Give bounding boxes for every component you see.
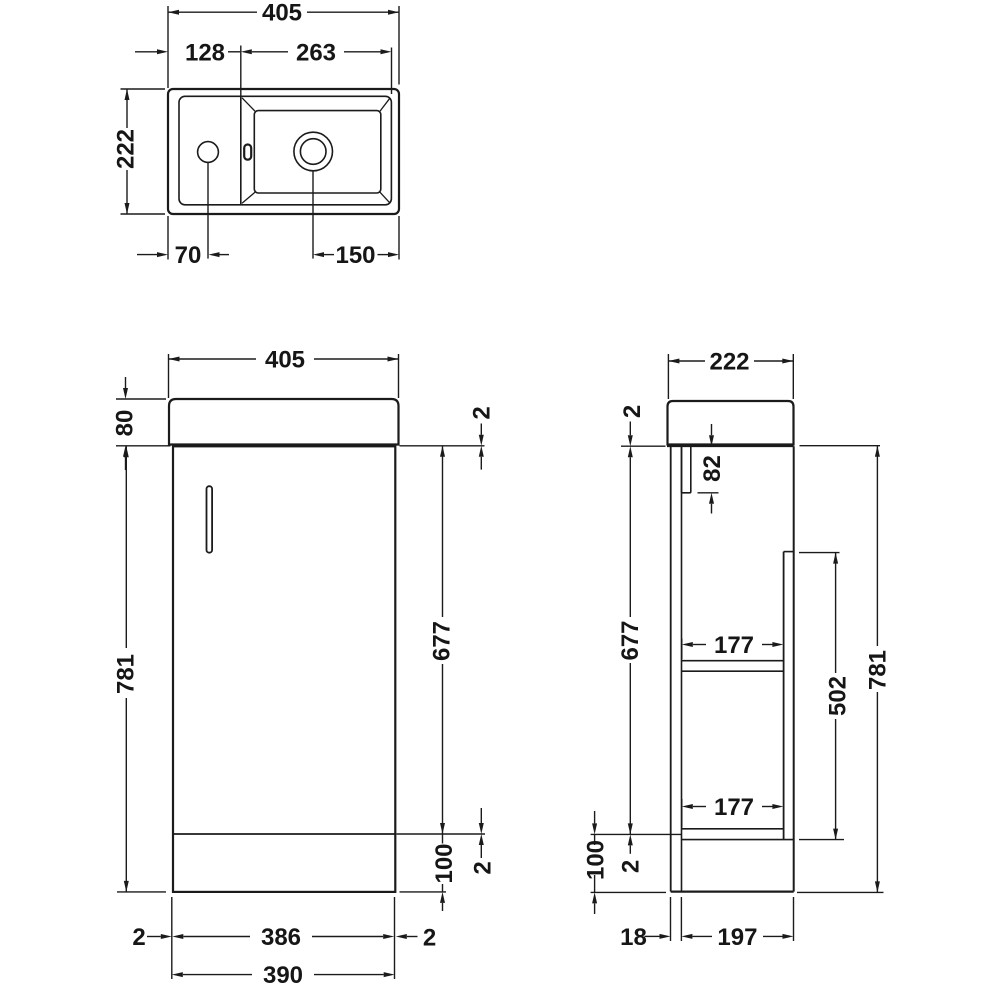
svg-text:82: 82 [699, 455, 726, 482]
svg-text:2: 2 [619, 405, 646, 418]
svg-text:2: 2 [423, 924, 436, 951]
svg-text:197: 197 [717, 924, 757, 951]
svg-text:677: 677 [617, 620, 644, 660]
svg-text:405: 405 [262, 0, 302, 27]
svg-text:781: 781 [865, 650, 892, 690]
svg-text:100: 100 [583, 840, 610, 880]
svg-text:70: 70 [175, 242, 202, 269]
svg-text:386: 386 [261, 924, 301, 951]
svg-text:18: 18 [620, 924, 647, 951]
svg-text:2: 2 [132, 924, 145, 951]
svg-text:677: 677 [429, 621, 456, 661]
svg-text:2: 2 [469, 406, 496, 419]
svg-text:405: 405 [265, 347, 305, 374]
svg-text:390: 390 [263, 962, 303, 989]
svg-text:263: 263 [296, 39, 336, 66]
svg-text:100: 100 [431, 843, 458, 883]
svg-text:781: 781 [113, 654, 140, 694]
svg-text:177: 177 [714, 632, 754, 659]
svg-text:150: 150 [335, 242, 375, 269]
svg-text:222: 222 [113, 129, 140, 169]
svg-text:80: 80 [112, 410, 139, 437]
svg-text:222: 222 [709, 349, 749, 376]
svg-text:2: 2 [470, 861, 497, 874]
svg-text:177: 177 [714, 794, 754, 821]
svg-text:128: 128 [185, 39, 225, 66]
svg-text:2: 2 [618, 860, 645, 873]
svg-text:502: 502 [825, 676, 852, 716]
